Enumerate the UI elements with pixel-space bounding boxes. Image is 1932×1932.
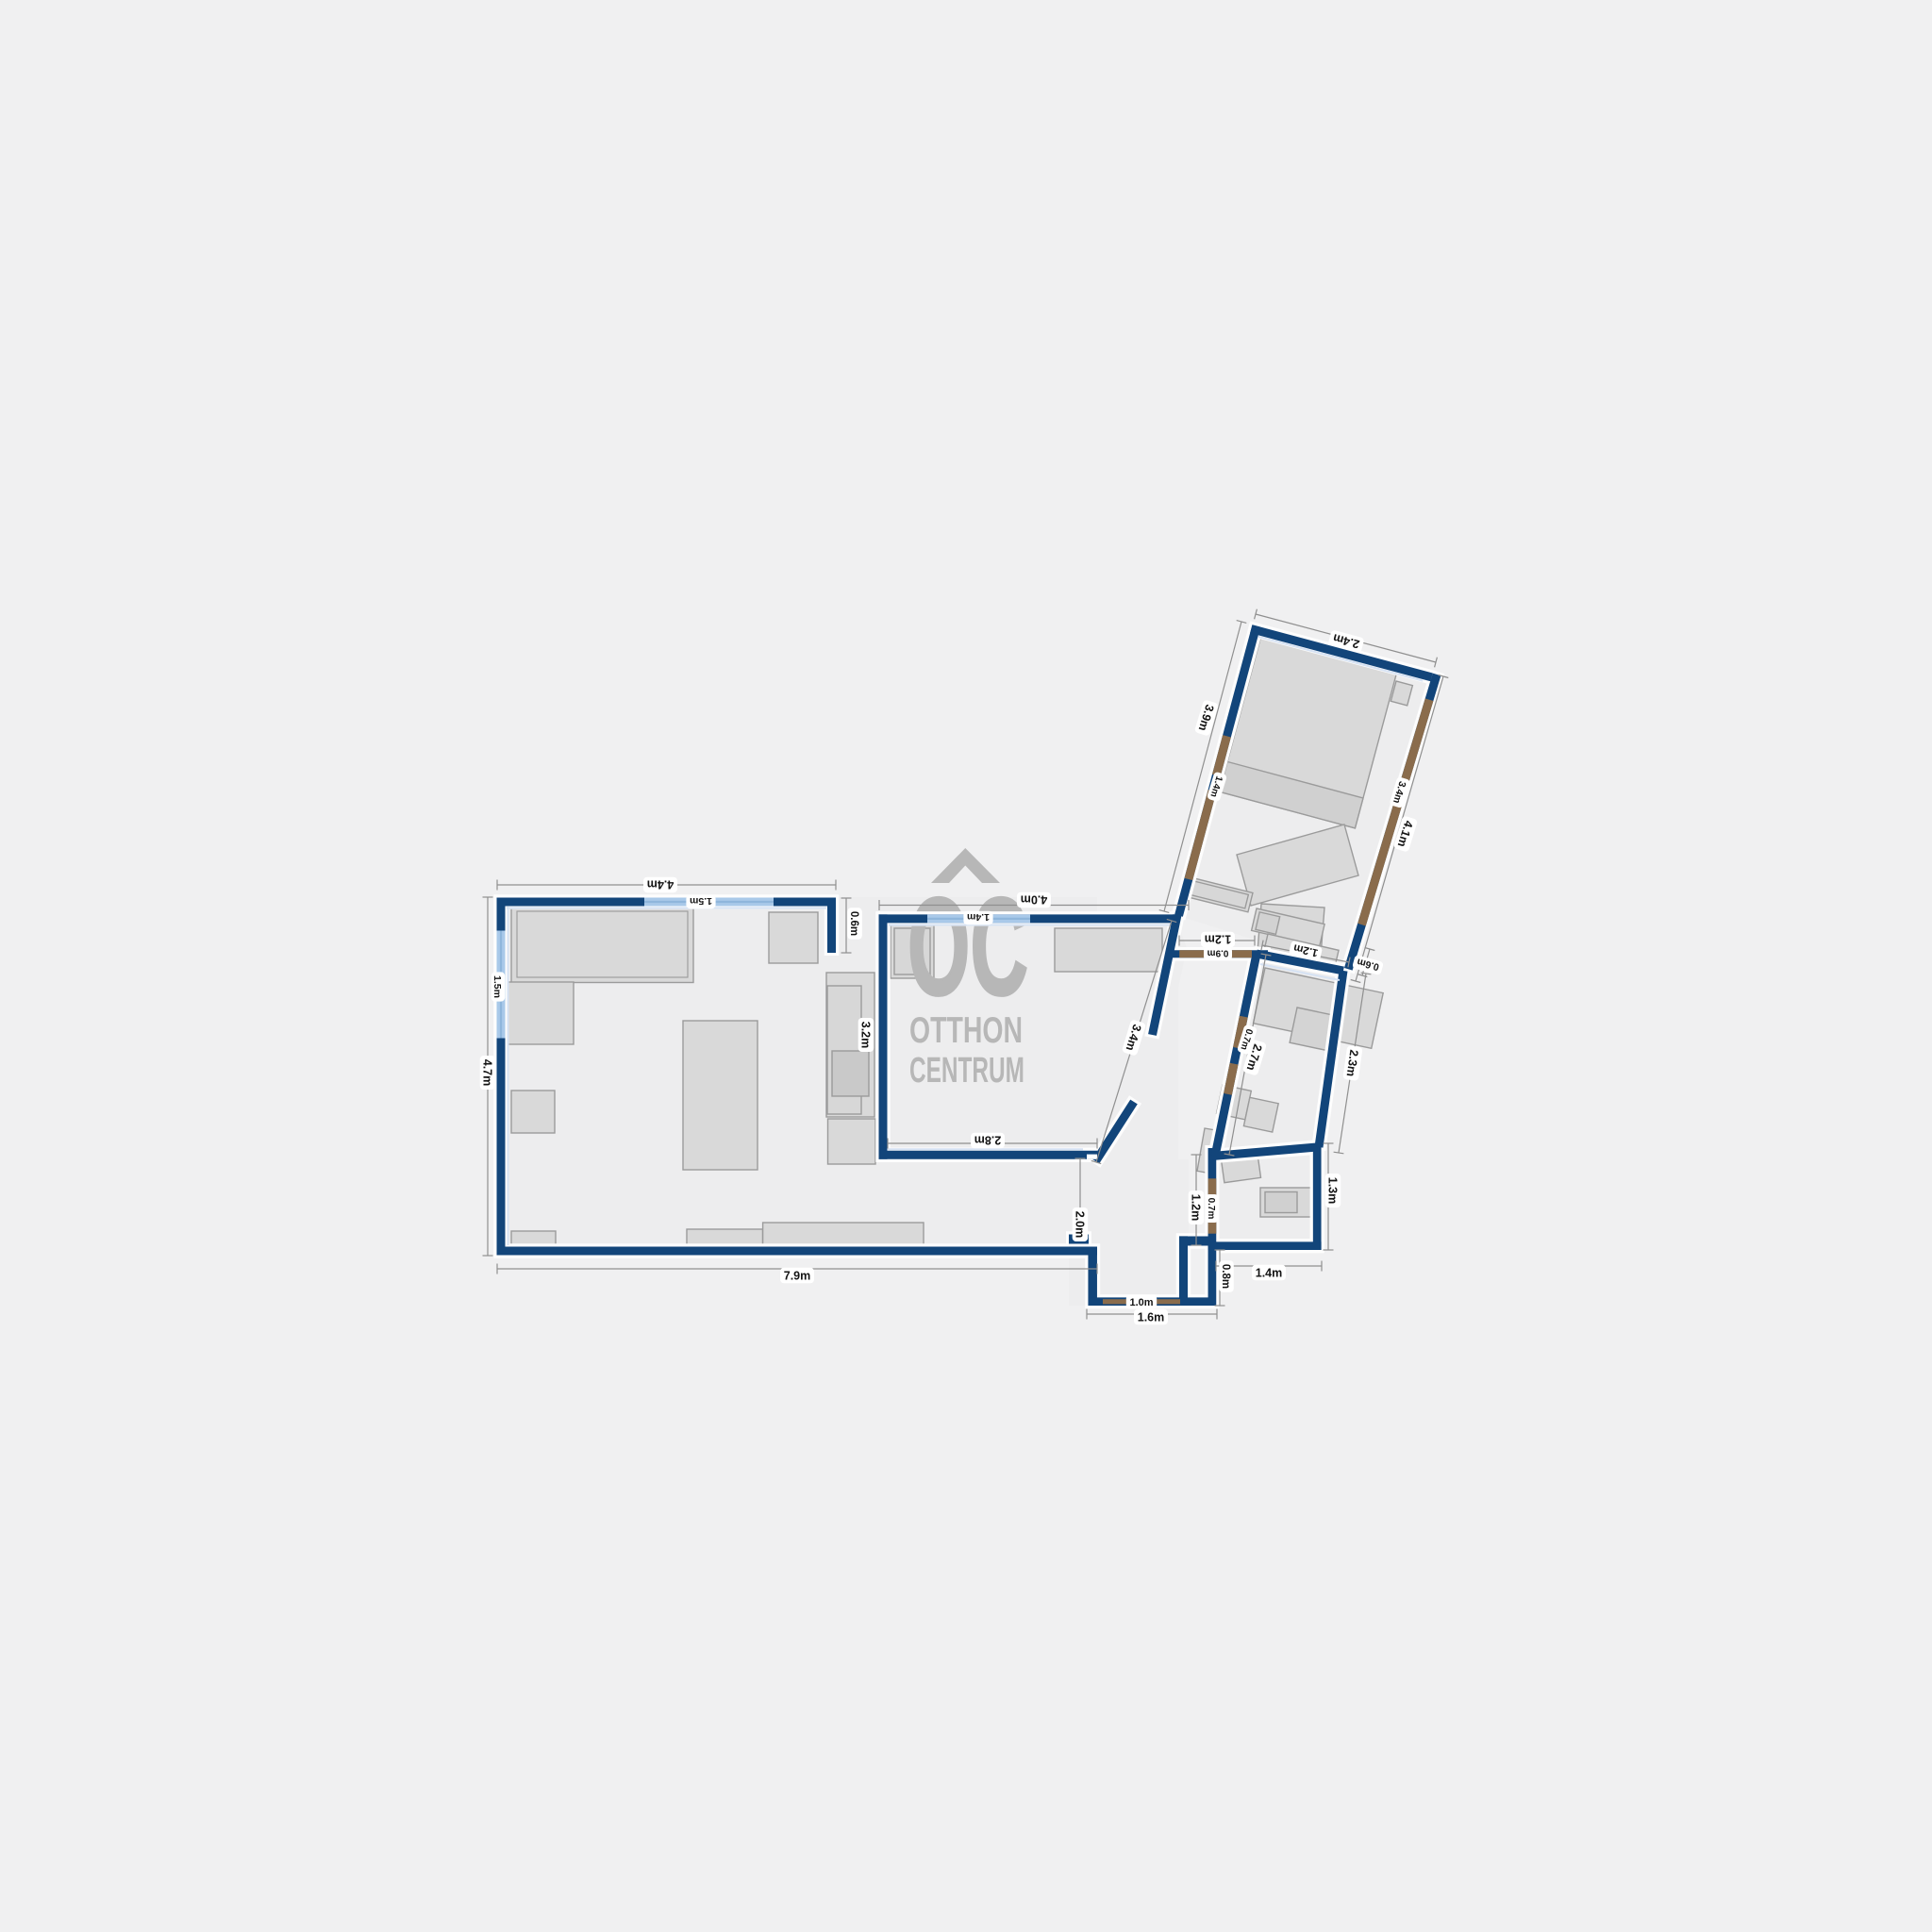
svg-text:1.5m: 1.5m: [690, 895, 712, 907]
svg-text:4.0m: 4.0m: [1021, 893, 1048, 907]
svg-text:1.0m: 1.0m: [1129, 1297, 1153, 1308]
svg-text:1.4m: 1.4m: [967, 911, 990, 923]
svg-text:1.2m: 1.2m: [1205, 933, 1232, 946]
svg-text:2.8m: 2.8m: [974, 1134, 1002, 1147]
svg-text:1.5m: 1.5m: [491, 975, 503, 998]
svg-text:1.2m: 1.2m: [1190, 1194, 1203, 1222]
svg-text:3.2m: 3.2m: [859, 1022, 873, 1049]
svg-text:CENTRUM: CENTRUM: [909, 1051, 1024, 1091]
svg-text:0.9m: 0.9m: [1207, 947, 1228, 958]
svg-text:OTTHON: OTTHON: [909, 1010, 1023, 1051]
svg-text:OC: OC: [908, 870, 1028, 1024]
svg-text:1.3m: 1.3m: [1326, 1177, 1340, 1205]
svg-text:7.9m: 7.9m: [784, 1270, 811, 1283]
svg-text:0.7m: 0.7m: [1206, 1198, 1216, 1220]
svg-text:0.6m: 0.6m: [848, 911, 859, 936]
svg-text:4.4m: 4.4m: [647, 878, 675, 891]
svg-text:1.4m: 1.4m: [1256, 1267, 1283, 1280]
svg-text:4.7m: 4.7m: [481, 1059, 494, 1087]
svg-text:0.8m: 0.8m: [1220, 1264, 1231, 1289]
svg-text:2.0m: 2.0m: [1074, 1211, 1087, 1239]
svg-text:1.6m: 1.6m: [1138, 1311, 1165, 1324]
